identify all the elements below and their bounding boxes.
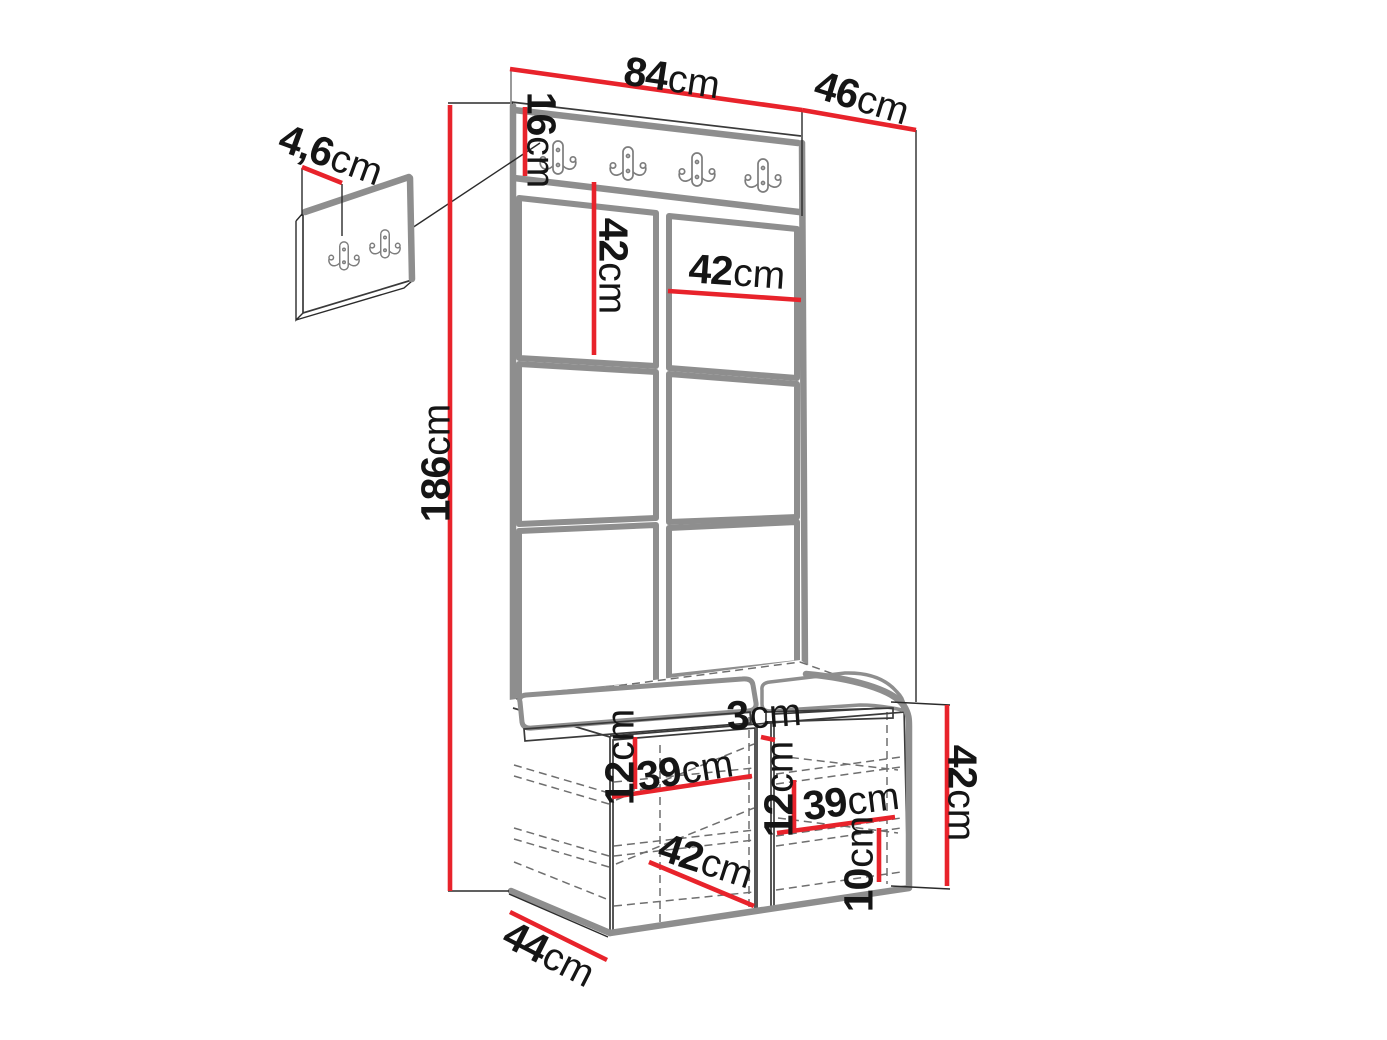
dim-label-seat-gap: 3cm	[725, 688, 803, 740]
dim-label-tile-height: 42cm	[590, 218, 637, 315]
dim-label-bottom-gap: 10cm	[836, 816, 883, 913]
dim-label-bench-height: 42cm	[939, 745, 986, 842]
dim-label-tile-width: 42cm	[687, 245, 787, 299]
dim-label-right-shelf-gap: 12cm	[756, 741, 803, 838]
dim-label-total-height: 186cm	[413, 404, 460, 522]
dim-label-rail-height: 16cm	[518, 92, 565, 189]
dimension-diagram: 84cm 46cm 16cm 42cm 42cm 186cm 4,6cm 3cm…	[0, 0, 1387, 1040]
furniture-line-art	[0, 0, 1387, 1040]
